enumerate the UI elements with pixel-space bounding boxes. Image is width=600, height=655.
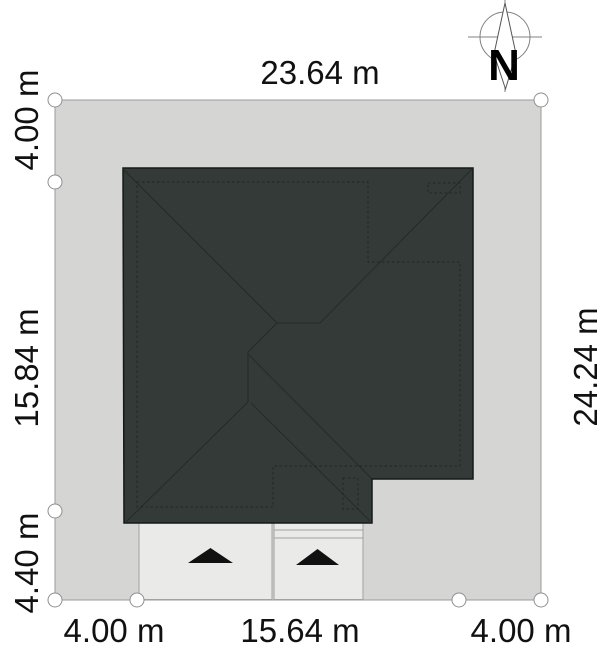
boundary-marker [534,593,548,607]
boundary-marker [48,504,62,518]
site-plan-canvas: N 23.64 m 4.00 m 15.84 m 4.40 m 24.24 m … [0,0,600,655]
dimension-bottom-right: 4.00 m [471,612,572,649]
compass: N [468,0,542,92]
boundary-marker [48,175,62,189]
compass-n-label: N [488,41,520,90]
boundary-marker [130,593,144,607]
dimension-left-top: 4.00 m [8,70,45,171]
dimension-bottom-left: 4.00 m [64,612,165,649]
boundary-marker [452,593,466,607]
site-plan-drawing: N 23.64 m 4.00 m 15.84 m 4.40 m 24.24 m … [0,0,600,655]
dimension-bottom-middle: 15.64 m [240,612,359,649]
boundary-marker [48,93,62,107]
dimension-left-middle: 15.84 m [8,308,45,427]
boundary-marker [48,593,62,607]
dimension-right: 24.24 m [567,307,600,426]
dimension-top: 23.64 m [260,54,379,91]
dimension-left-bottom: 4.40 m [8,513,45,614]
boundary-marker [534,93,548,107]
